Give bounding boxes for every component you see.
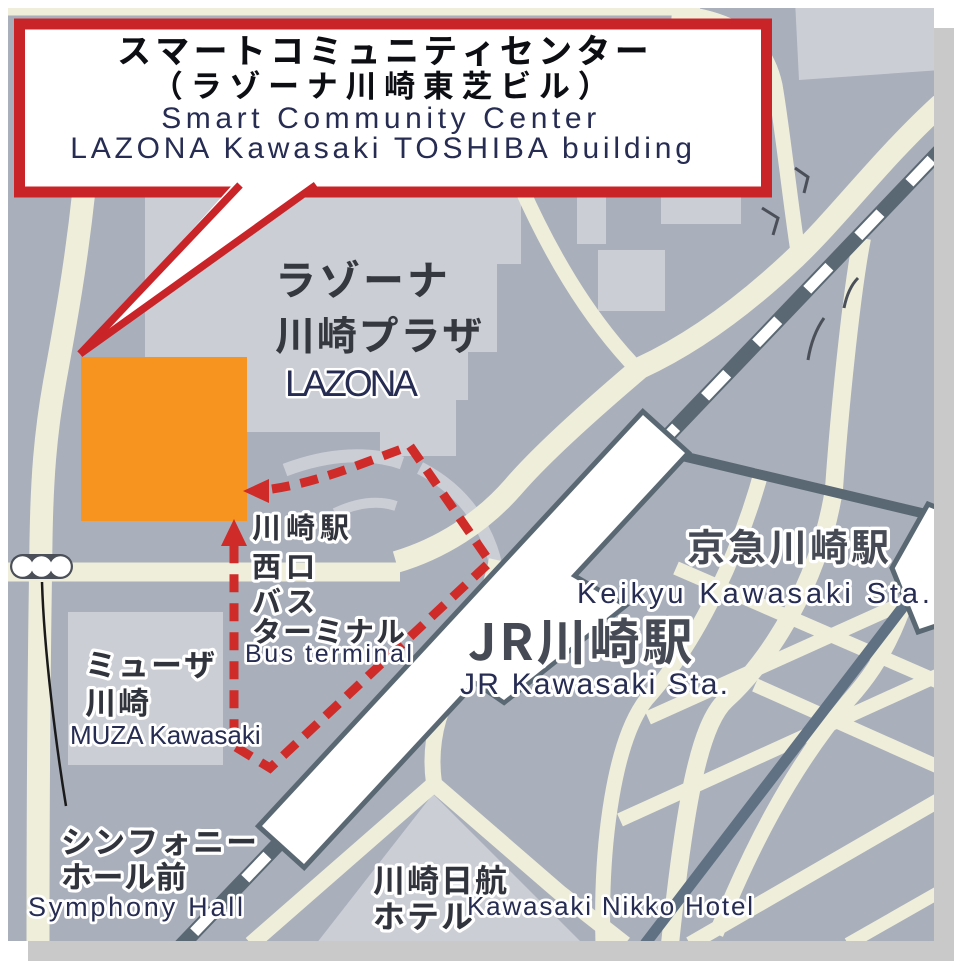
svg-text:LAZONA: LAZONA (285, 363, 418, 404)
svg-text:Smart Community Center: Smart Community Center (161, 102, 601, 135)
svg-text:MUZA Kawasaki: MUZA Kawasaki (70, 720, 261, 750)
svg-text:Kawasaki Nikko Hotel: Kawasaki Nikko Hotel (467, 891, 755, 921)
svg-text:Symphony Hall: Symphony Hall (28, 892, 246, 922)
svg-text:Bus terminal: Bus terminal (245, 640, 415, 668)
svg-text:Keikyu Kawasaki Sta.: Keikyu Kawasaki Sta. (577, 578, 934, 610)
svg-text:JR Kawasaki Sta.: JR Kawasaki Sta. (460, 668, 730, 701)
svg-text:LAZONA Kawasaki TOSHIBA buildi: LAZONA Kawasaki TOSHIBA building (70, 132, 695, 165)
